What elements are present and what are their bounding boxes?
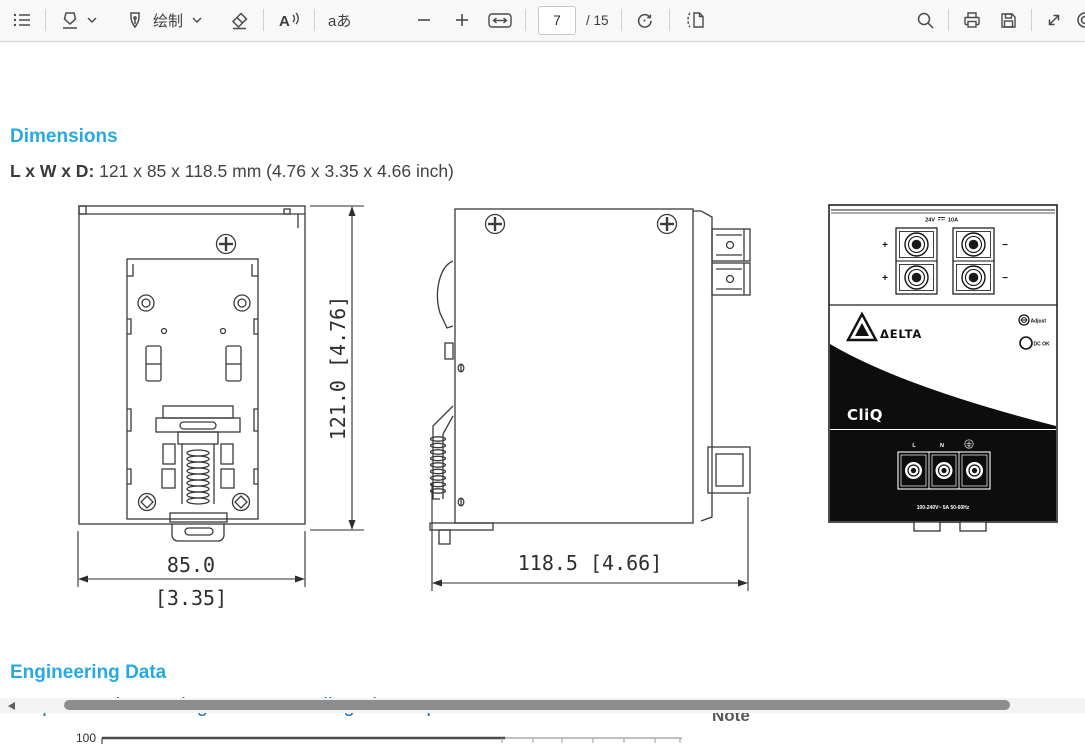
lwd-value: 121 x 85 x 118.5 mm (4.76 x 3.35 x 4.66 … xyxy=(94,161,454,181)
plus-label: + xyxy=(882,273,888,284)
lwd-label: L x W x D: xyxy=(10,161,94,181)
toolbar-divider xyxy=(948,9,949,31)
horizontal-scrollbar[interactable] xyxy=(0,698,1085,713)
page-total: / 15 xyxy=(586,13,609,28)
rotate-icon[interactable] xyxy=(634,4,655,36)
input-rating: 100-240V~ 5A 50-60Hz xyxy=(917,505,970,511)
more-options-icon[interactable] xyxy=(1075,4,1085,36)
chevron-down-icon[interactable] xyxy=(86,4,98,36)
neutral-label: N xyxy=(940,443,944,449)
svg-text:A: A xyxy=(279,13,290,30)
page-number-input[interactable] xyxy=(538,6,576,35)
toolbar-divider xyxy=(314,9,315,31)
din-clip-side xyxy=(430,261,493,544)
save-icon[interactable] xyxy=(999,4,1018,36)
zoom-out-icon[interactable] xyxy=(415,4,433,36)
chevron-down-icon[interactable] xyxy=(191,4,203,36)
mounting-screw xyxy=(217,235,236,254)
page-view-icon[interactable] xyxy=(684,4,707,36)
output-voltage: 24V xyxy=(925,218,935,224)
toolbar-right-group xyxy=(916,0,1085,40)
clip-spring xyxy=(187,450,209,504)
din-rail-clip xyxy=(139,406,250,541)
lwd-line: L x W x D: 121 x 85 x 118.5 mm (4.76 x 3… xyxy=(10,161,454,182)
drawing-side-view: 118.5 [4.66] xyxy=(420,201,770,601)
output-current: 10A xyxy=(948,218,958,224)
zoom-in-icon[interactable] xyxy=(453,4,471,36)
pdf-toolbar: 绘制 A aあ xyxy=(0,0,1085,42)
mounting-screw xyxy=(658,215,677,234)
output-terminal-side xyxy=(712,229,750,295)
dimensions-heading: Dimensions xyxy=(10,126,118,148)
draw-pen-icon[interactable] xyxy=(125,4,145,36)
dimension-lines xyxy=(78,206,364,587)
plus-label: + xyxy=(882,240,888,251)
back-view-outline xyxy=(79,206,305,541)
input-connector-side xyxy=(708,447,750,493)
product-front-panel: 24V 10A xyxy=(828,204,1058,534)
expand-icon[interactable] xyxy=(1045,4,1063,36)
engineering-data-heading: Engineering Data xyxy=(10,662,166,684)
width-dimension-inch: [3.35] xyxy=(155,586,227,610)
draw-label: 绘制 xyxy=(153,10,183,31)
toolbar-divider xyxy=(621,9,622,31)
toolbar-divider xyxy=(525,9,526,31)
toolbar-divider xyxy=(1031,9,1032,31)
bottom-tab xyxy=(960,522,986,531)
bottom-tab xyxy=(914,522,940,531)
minus-label: − xyxy=(1002,240,1008,251)
depth-dimension: 118.5 [4.66] xyxy=(518,551,663,575)
brand-wordmark: ΔELTA xyxy=(880,327,922,341)
pdf-page: Dimensions L x W x D: 121 x 85 x 118.5 m… xyxy=(0,41,1085,715)
toolbar-divider xyxy=(263,9,264,31)
scroll-left-arrow-icon[interactable] xyxy=(8,702,15,710)
table-of-contents-icon[interactable] xyxy=(12,4,32,36)
translate-icon[interactable]: aあ xyxy=(328,4,351,36)
drawing-back-view: 121.0 [4.76] 85.0 [3.35] xyxy=(60,201,375,626)
adjust-label: Adjust xyxy=(1031,319,1047,325)
y-axis-tick-100: 100 xyxy=(76,731,96,745)
highlighter-icon[interactable] xyxy=(59,4,81,36)
toolbar-divider xyxy=(669,9,670,31)
derating-chart-partial: 100 xyxy=(60,728,720,756)
dc-ok-label: DC OK xyxy=(1034,342,1051,348)
toolbar-left-group: 绘制 A aあ xyxy=(12,0,351,40)
width-dimension-mm: 85.0 xyxy=(167,553,215,577)
eraser-icon[interactable] xyxy=(229,4,250,36)
minus-label: − xyxy=(1002,273,1008,284)
height-dimension: 121.0 [4.76] xyxy=(326,296,350,441)
scrollbar-thumb[interactable] xyxy=(64,700,1010,710)
x-axis-top-ticks xyxy=(502,738,680,743)
dimension-arrows xyxy=(78,206,356,583)
toolbar-center-group: / 15 xyxy=(415,0,707,40)
toolbar-divider xyxy=(45,9,46,31)
side-view-outline xyxy=(430,209,750,544)
read-aloud-icon[interactable]: A xyxy=(277,4,301,36)
mounting-screw xyxy=(486,215,505,234)
print-icon[interactable] xyxy=(962,4,982,36)
fit-width-icon[interactable] xyxy=(487,4,513,36)
cliq-series-logo: CliQ xyxy=(847,406,883,424)
search-icon[interactable] xyxy=(916,4,935,36)
